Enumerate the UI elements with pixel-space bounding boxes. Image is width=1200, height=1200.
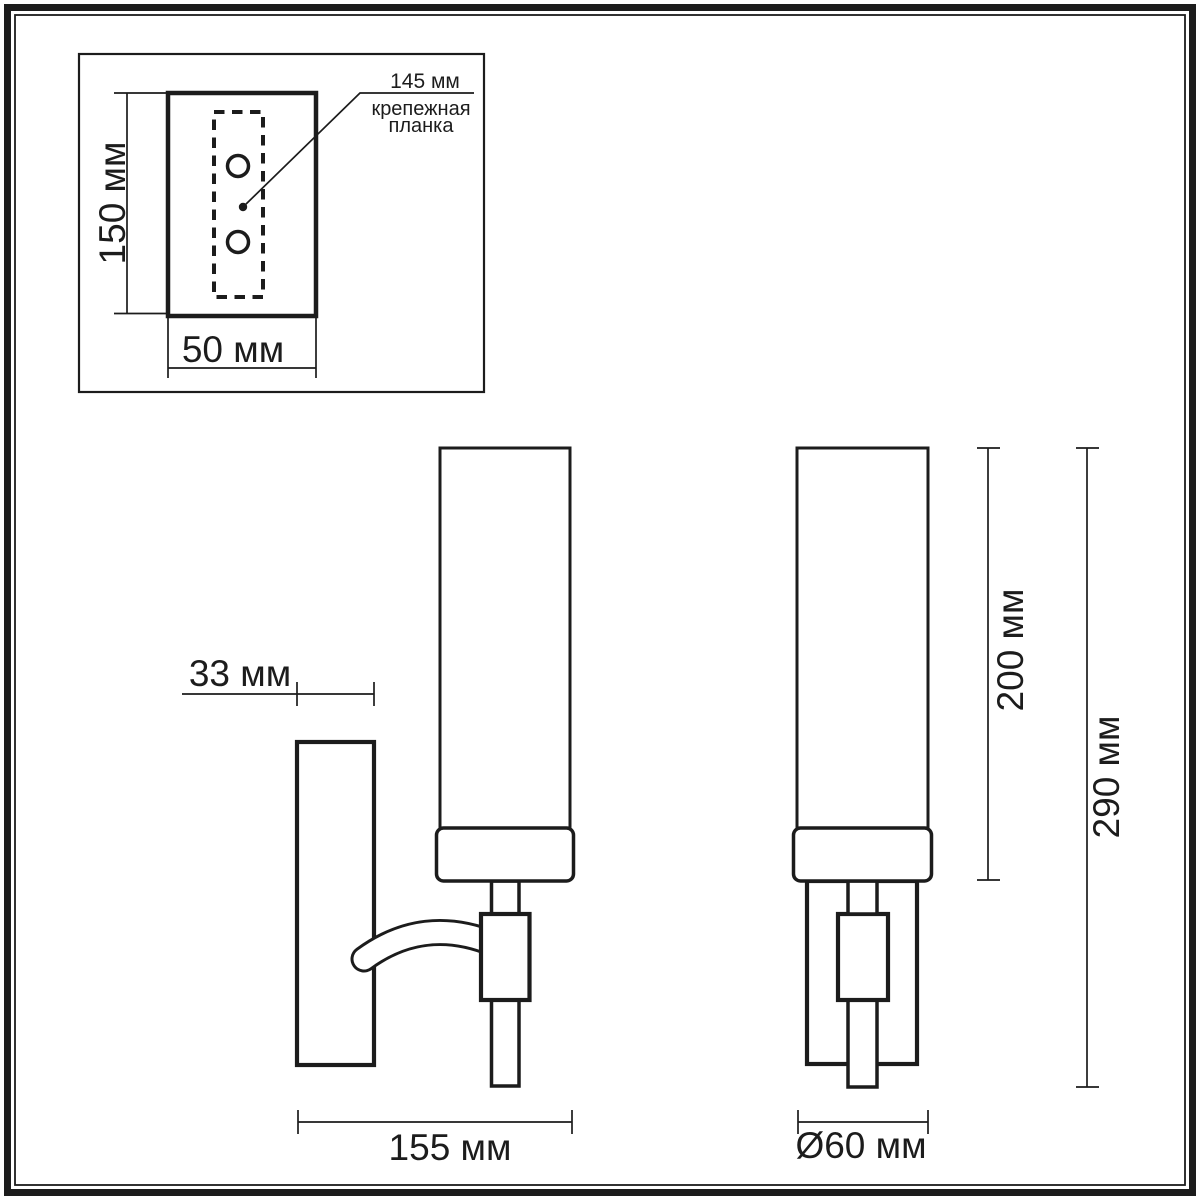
plate-depth-label: 33 мм [189,653,291,694]
lower-rod-side [492,1000,520,1086]
callout-caption-line2: планка [389,115,455,137]
glass-shade-front [797,448,928,828]
lamp-stem-side [492,881,520,915]
overall-depth-dimension: 155 мм [298,1110,572,1168]
technical-drawing-page: 145 мм крепежная планка 150 мм 50 мм [0,0,1200,1200]
plate-height-label: 150 мм [92,142,133,265]
shade-height-dimension: 200 мм [977,448,1031,880]
plate-depth-dimension: 33 мм [182,653,374,706]
plate-height-dimension: 150 мм [92,93,168,314]
overall-height-label: 290 мм [1086,716,1127,839]
diameter-label: Ø60 мм [795,1125,926,1166]
diameter-dimension: Ø60 мм [795,1110,928,1166]
top-view-inset: 145 мм крепежная планка 150 мм 50 мм [79,54,484,392]
screw-hole-top [228,156,249,177]
overall-depth-label: 155 мм [389,1127,512,1168]
wall-plate-side [297,742,374,1065]
front-view: 200 мм 290 мм Ø60 мм [794,448,1128,1166]
overall-height-dimension: 290 мм [1076,448,1127,1087]
shade-height-label: 200 мм [990,589,1031,712]
screw-hole-bottom [228,232,249,253]
side-view: 33 мм 155 мм [182,448,574,1168]
socket-block-side [481,914,530,1000]
lamp-stem-front [848,881,877,914]
wall-lamp-dimension-drawing: 145 мм крепежная планка 150 мм 50 мм [0,0,1200,1200]
callout-value-label: 145 мм [390,70,460,93]
collar-side [437,828,574,881]
plate-width-label: 50 мм [182,329,284,370]
glass-shade-side [440,448,570,828]
lower-rod-front [848,1000,877,1087]
collar-front [794,828,932,881]
plate-width-dimension: 50 мм [168,318,316,378]
socket-block-front [838,914,888,1000]
